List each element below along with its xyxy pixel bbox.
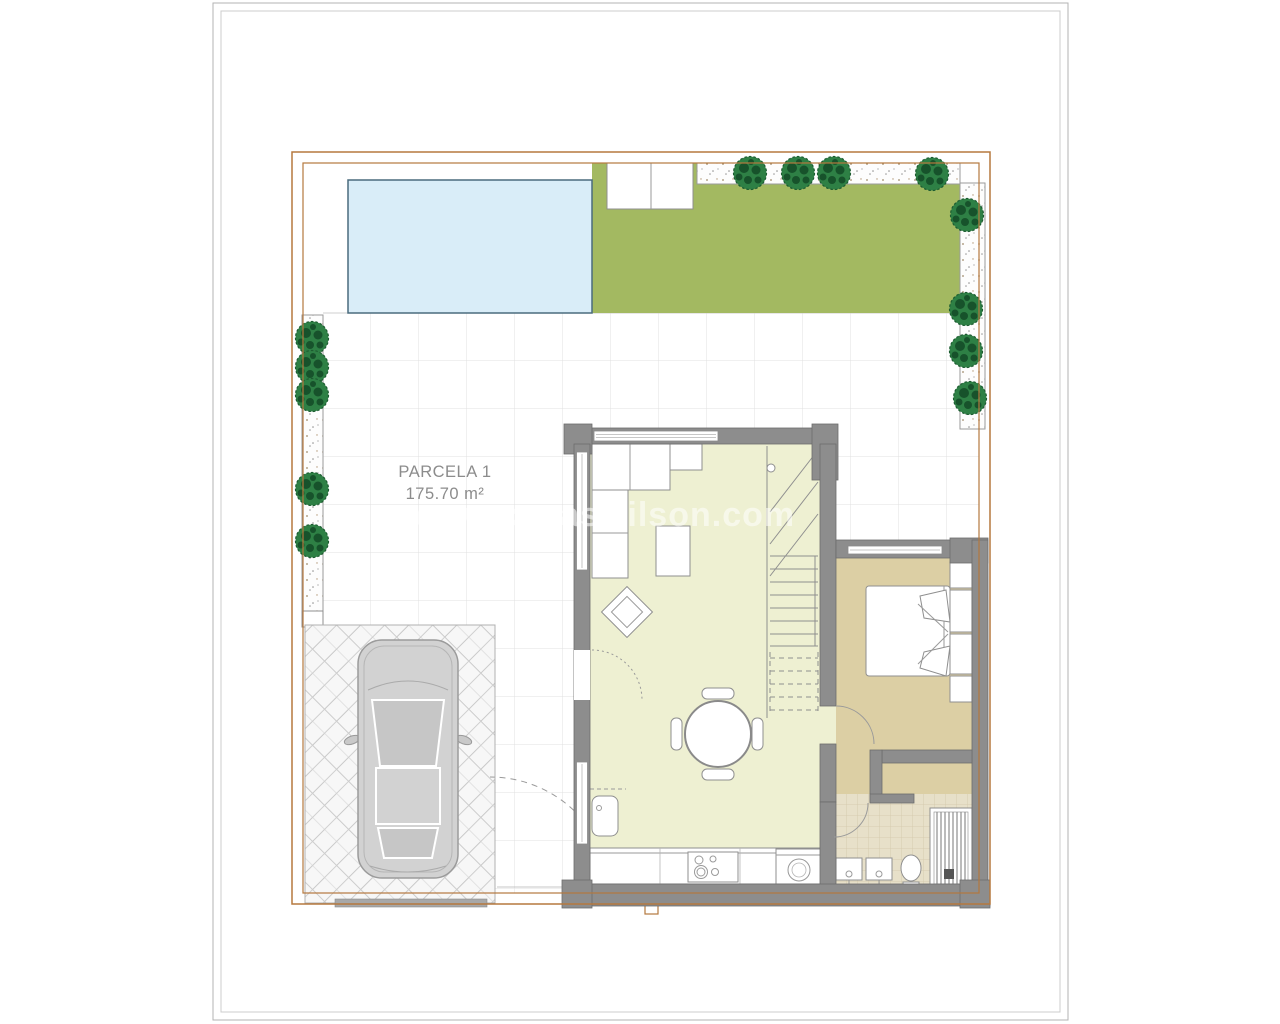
tree-icon	[296, 525, 329, 558]
bedroom-doorway-floor	[820, 706, 836, 744]
car-roof	[376, 768, 440, 824]
double-bed	[866, 586, 950, 676]
tree-icon	[818, 157, 851, 190]
cooktop	[688, 852, 738, 882]
tree-icon	[954, 382, 987, 415]
floor-plan-drawing: PARCELA 1 175.70 m²	[0, 0, 1280, 1024]
floor-plan-sheet: PARCELA 1 175.70 m²	[0, 0, 1280, 1024]
garden-shed-box	[607, 163, 693, 209]
entrance-door-opening	[574, 650, 590, 700]
swimming-pool	[348, 180, 592, 313]
dining-chair	[752, 718, 763, 750]
car-rear-window	[378, 828, 438, 858]
tree-icon	[950, 335, 983, 368]
living-room-window	[594, 431, 718, 441]
tree-icon	[296, 379, 329, 412]
fence-line	[335, 899, 487, 907]
kitchen-window	[577, 762, 588, 844]
watermark: www.casaswilson.com	[408, 496, 795, 534]
dining-chair	[671, 718, 682, 750]
shower	[930, 808, 972, 888]
tree-icon	[296, 322, 329, 355]
tree-icon	[734, 157, 767, 190]
toilet	[901, 855, 921, 888]
car-windshield	[372, 700, 444, 766]
shower-drain	[944, 869, 954, 879]
dining-chair	[702, 769, 734, 780]
tree-icon	[782, 157, 815, 190]
stair-newel	[767, 464, 775, 472]
dining-chair	[702, 688, 734, 699]
dining-table	[685, 701, 751, 767]
washing-machine	[776, 849, 822, 884]
tree-icon	[950, 293, 983, 326]
kitchen-sink	[592, 796, 618, 836]
tree-icon	[296, 473, 329, 506]
bedroom-window	[848, 546, 942, 554]
wardrobe-units	[950, 562, 972, 702]
car-top-view	[343, 640, 473, 878]
parcel-label: PARCELA 1	[398, 463, 491, 481]
pillow	[920, 590, 950, 622]
